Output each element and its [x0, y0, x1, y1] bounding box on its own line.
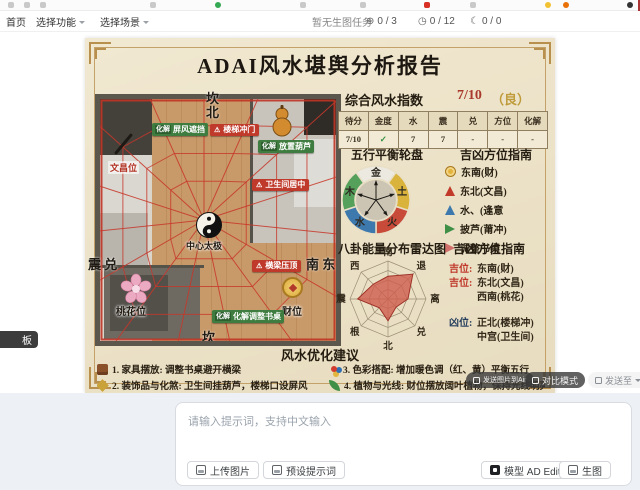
svg-text:木: 木	[344, 185, 356, 198]
peach-blossom-icon	[120, 273, 152, 305]
chevron-down-icon	[143, 21, 149, 27]
label-wenchang: 文昌位	[108, 161, 139, 174]
quota-counter: ◷0 / 12	[418, 11, 455, 32]
mitigation-badge-desk: 化解化解调整书桌	[212, 310, 284, 323]
nav-home[interactable]: 首页	[6, 11, 26, 32]
plan-cabinet-dark	[304, 99, 340, 135]
prompt-input[interactable]	[188, 413, 618, 447]
svg-text:南: 南	[383, 246, 393, 258]
list-icon	[272, 465, 282, 475]
direction-line: 西南(桃花)	[449, 288, 553, 302]
svg-text:水: 水	[354, 216, 366, 229]
legend-item: 披芦(莆冲)	[445, 219, 553, 238]
table-header-cell: 金度	[369, 112, 398, 130]
arr-green-icon	[445, 224, 455, 234]
svg-text:离: 离	[430, 293, 440, 305]
app-window: 首页 选择功能 选择场景 暂无生图任务 ⊕0 / 3◷0 / 12☾0 / 0 …	[0, 0, 640, 490]
compass-south-label: 坎	[202, 327, 215, 346]
gourd-icon	[272, 105, 292, 137]
yin-yang-icon	[196, 212, 222, 238]
spark-icon	[568, 465, 578, 475]
nav-select-function[interactable]: 选择功能	[36, 11, 85, 32]
suggestion-item: 1. 家具摆放: 调整书桌避开横梁	[97, 361, 329, 377]
legend-item: 水、(逢意	[445, 200, 553, 219]
floor-plan: 化解屏风遮挡 楼梯冲门 化解放置葫芦 文昌位 卫生间居中 横梁压顶 桃花位 财位…	[95, 94, 341, 346]
prompt-panel: 上传图片 预设提示词 模型 AD Edit 生图	[0, 393, 640, 490]
favicon	[424, 2, 430, 8]
favicon	[150, 2, 156, 8]
direction-list: 吉位:东南(财)吉位:东北(文昌)西南(桃花)凶位:正北(楼梯冲)中宫(卫生间)	[449, 260, 553, 342]
five-elements-wheel: 金土火水木	[331, 154, 421, 244]
label-wealth: 财位	[282, 303, 302, 318]
table-cell: 7	[429, 131, 458, 148]
model-selector-button[interactable]: 模型 AD Edit	[481, 461, 570, 479]
table-header-cell: 震	[429, 112, 458, 130]
generate-button[interactable]: 生图	[559, 461, 611, 479]
favicon	[8, 2, 14, 8]
favicon	[24, 2, 30, 8]
svg-text:火: 火	[387, 217, 398, 229]
favicon	[470, 2, 476, 8]
palette-icon	[331, 366, 337, 372]
favicon	[360, 2, 366, 8]
overall-score-grade: （良）	[491, 89, 530, 108]
wealth-coin-icon	[282, 277, 303, 298]
image-icon	[196, 465, 206, 475]
clipped-side-badge[interactable]: 板	[0, 331, 38, 348]
legend-item: 东南(财)	[445, 162, 553, 181]
label-peach: 桃花位	[116, 303, 146, 318]
plan-wall	[250, 99, 253, 243]
prompt-card: 上传图片 预设提示词 模型 AD Edit 生图	[175, 402, 632, 486]
send-icon	[595, 377, 602, 384]
score-table: 待分金度水震兑方位化解7/10✓77---	[338, 111, 548, 149]
moon-icon: ☾	[470, 16, 479, 27]
compare-mode-button[interactable]: 对比模式	[525, 372, 585, 388]
favicon	[40, 2, 46, 8]
canvas-area: ADAI风水堪舆分析报告	[0, 32, 640, 393]
svg-text:震: 震	[335, 293, 346, 305]
direction-line: 凶位:正北(楼梯冲)	[449, 314, 553, 328]
svg-text:金: 金	[370, 166, 382, 179]
image-icon	[473, 377, 480, 384]
svg-text:西: 西	[350, 261, 360, 272]
favicon	[545, 2, 551, 8]
table-header-cell: 兑	[458, 112, 487, 130]
quota-counter: ☾0 / 0	[470, 11, 501, 32]
clock-icon: ◷	[418, 16, 427, 27]
preset-prompts-button[interactable]: 预设提示词	[263, 461, 345, 479]
favicon	[215, 2, 221, 8]
warning-badge-stairs: 楼梯冲门	[210, 124, 259, 136]
compass-north-lower: 北	[206, 102, 219, 121]
svg-text:退: 退	[416, 261, 426, 272]
overall-score-value: 7/10	[457, 88, 482, 104]
direction-line: 吉位:东北(文昌)	[449, 274, 553, 288]
label-taiji-center: 中心太极	[186, 239, 222, 252]
overall-score-label: 综合风水指数	[345, 90, 423, 109]
legend-title: 吉凶方位指南	[460, 146, 532, 163]
direction-line: 中宫(卫生间)	[449, 328, 553, 342]
legend-item: 东北(文昌)	[445, 181, 553, 200]
circle-up-icon: ⊕	[366, 16, 374, 27]
quota-counter: ⊕0 / 3	[366, 11, 397, 32]
tri-blue-icon	[445, 205, 455, 215]
chevron-down-icon	[79, 21, 85, 27]
upload-image-button[interactable]: 上传图片	[187, 461, 259, 479]
mitigation-badge-gourd: 化解放置葫芦	[258, 140, 314, 153]
warning-badge-beam: 横梁压顶	[252, 260, 301, 272]
mitigation-badge-screen: 化解屏风遮挡	[152, 123, 208, 136]
svg-text:土: 土	[397, 185, 407, 198]
svg-text:根: 根	[350, 326, 360, 338]
brush-icon	[97, 379, 109, 392]
table-header-cell: 化解	[518, 112, 547, 130]
browser-tab-strip	[0, 0, 640, 11]
plan-room-dark	[100, 99, 152, 155]
warning-badge-bathroom: 卫生间居中	[252, 179, 309, 191]
send-to-button[interactable]: 发送至	[588, 372, 640, 388]
furniture-icon	[97, 364, 108, 375]
compass-west-pair: 震 兑	[88, 254, 117, 273]
direction-guide-title: 吉凶方位指南	[453, 240, 525, 257]
table-header-cell: 方位	[488, 112, 517, 130]
app-toolbar: 首页 选择功能 选择场景 暂无生图任务 ⊕0 / 3◷0 / 12☾0 / 0	[0, 11, 640, 32]
task-status-text: 暂无生图任务	[312, 11, 372, 32]
chevron-down-icon	[635, 379, 640, 385]
send-to-air-button[interactable]: 发送图片到Air	[466, 372, 534, 388]
nav-select-scene[interactable]: 选择场景	[100, 11, 149, 32]
coin-icon	[445, 166, 456, 177]
report-title: ADAI风水堪舆分析报告	[85, 50, 555, 80]
favicon	[563, 2, 569, 8]
plant-icon	[329, 380, 340, 391]
favicon	[300, 2, 306, 8]
suggestion-item: 2. 装饰品与化煞: 卫生间挂葫芦，楼梯口设屏风	[97, 377, 329, 393]
tri-red-icon	[445, 186, 455, 196]
favicon	[627, 2, 633, 8]
compare-icon	[532, 377, 539, 384]
generated-image[interactable]: ADAI风水堪舆分析报告	[85, 38, 555, 393]
table-header-cell: 水	[399, 112, 428, 130]
svg-text:兑: 兑	[416, 326, 426, 338]
model-icon	[490, 465, 500, 475]
direction-line: 吉位:东南(财)	[449, 260, 553, 274]
table-header-cell: 待分	[339, 112, 368, 130]
